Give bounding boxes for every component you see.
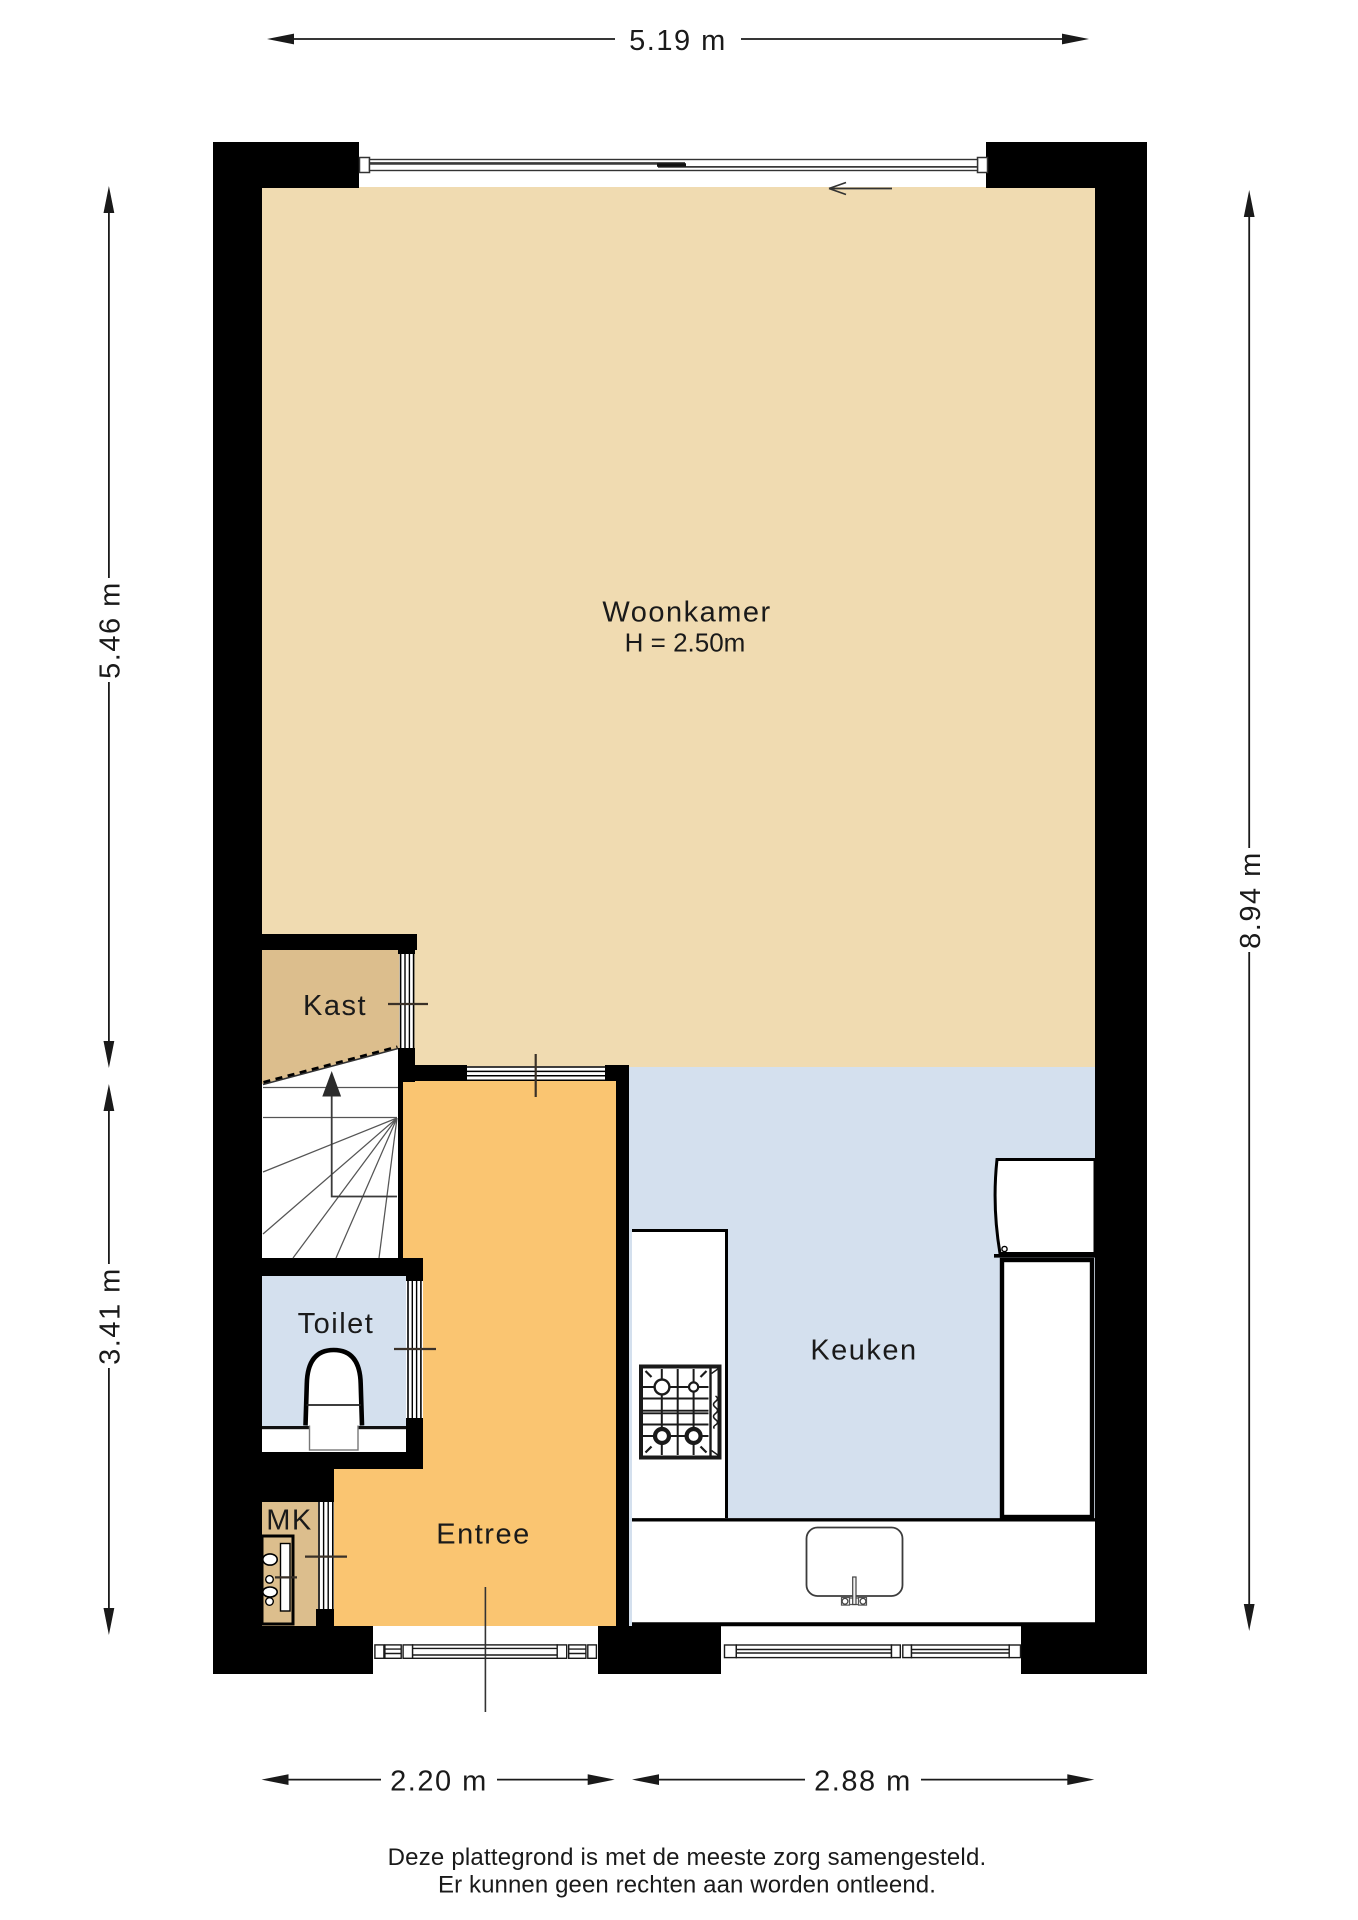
- svg-text:Toilet: Toilet: [298, 1308, 375, 1340]
- svg-text:Woonkamer: Woonkamer: [602, 597, 771, 629]
- svg-text:2.20 m: 2.20 m: [390, 1766, 488, 1798]
- svg-text:MK: MK: [266, 1505, 313, 1537]
- svg-text:Deze plattegrond is met de mee: Deze plattegrond is met de meeste zorg s…: [388, 1844, 987, 1871]
- svg-text:5.19 m: 5.19 m: [629, 25, 727, 57]
- svg-text:Entree: Entree: [436, 1519, 530, 1551]
- svg-text:Er kunnen geen rechten aan wor: Er kunnen geen rechten aan worden ontlee…: [438, 1872, 936, 1899]
- svg-text:5.46 m: 5.46 m: [95, 581, 127, 679]
- svg-text:2.88 m: 2.88 m: [814, 1766, 912, 1798]
- svg-text:3.41 m: 3.41 m: [95, 1267, 127, 1365]
- svg-text:H = 2.50m: H = 2.50m: [625, 628, 746, 658]
- svg-text:Kast: Kast: [303, 990, 367, 1022]
- svg-text:Keuken: Keuken: [810, 1335, 917, 1367]
- svg-text:8.94 m: 8.94 m: [1235, 851, 1267, 949]
